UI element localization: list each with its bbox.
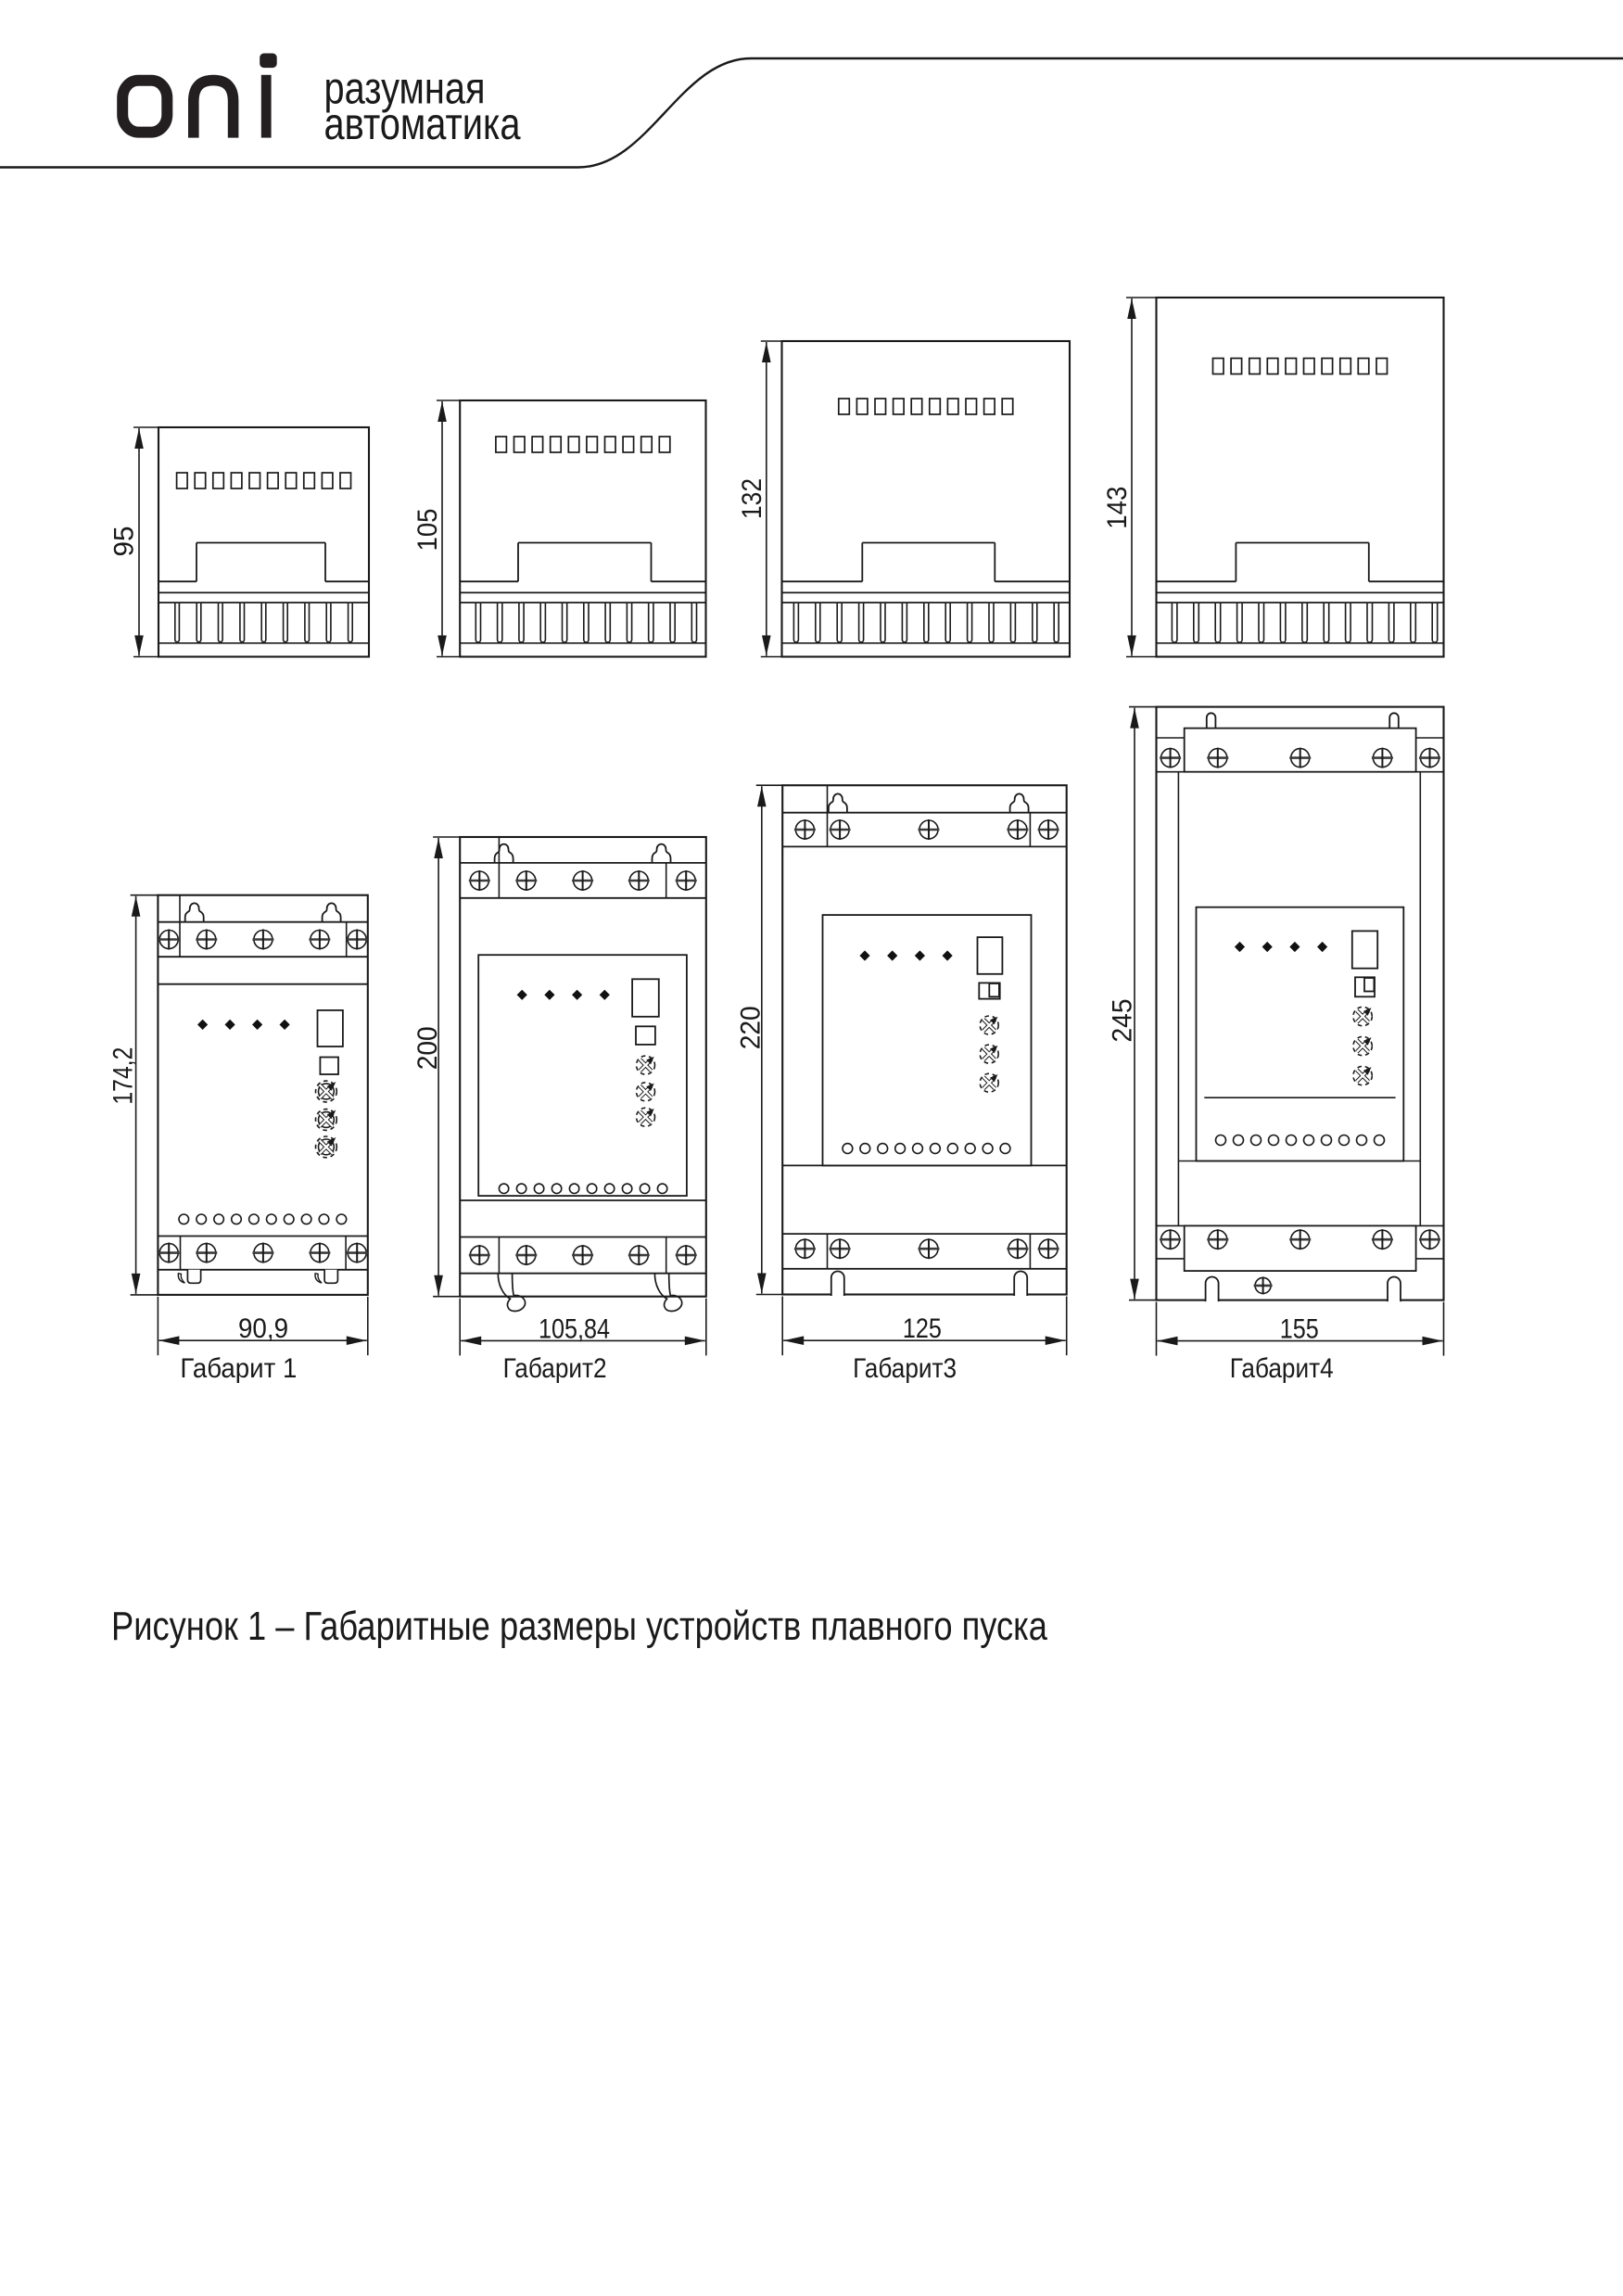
svg-text:125: 125	[903, 1313, 942, 1344]
svg-text:132: 132	[737, 478, 767, 519]
svg-text:Габарит3: Габарит3	[853, 1353, 957, 1384]
svg-text:105: 105	[412, 509, 443, 552]
svg-text:105,84: 105,84	[539, 1313, 610, 1344]
svg-text:Рисунок 1 – Габаритные размеры: Рисунок 1 – Габаритные размеры устройств…	[111, 1604, 1047, 1649]
svg-text:Габарит4: Габарит4	[1230, 1353, 1334, 1384]
svg-text:автоматика: автоматика	[324, 100, 521, 149]
svg-text:Габарит 1: Габарит 1	[180, 1353, 297, 1384]
svg-text:200: 200	[412, 1026, 443, 1070]
svg-text:Габарит2: Габарит2	[503, 1353, 607, 1384]
svg-text:95: 95	[109, 526, 140, 557]
svg-text:155: 155	[1280, 1314, 1319, 1345]
svg-text:90,9: 90,9	[238, 1313, 288, 1344]
svg-text:220: 220	[736, 1006, 767, 1049]
svg-text:174,2: 174,2	[108, 1047, 139, 1105]
svg-text:245: 245	[1108, 999, 1138, 1043]
svg-text:143: 143	[1102, 487, 1133, 529]
